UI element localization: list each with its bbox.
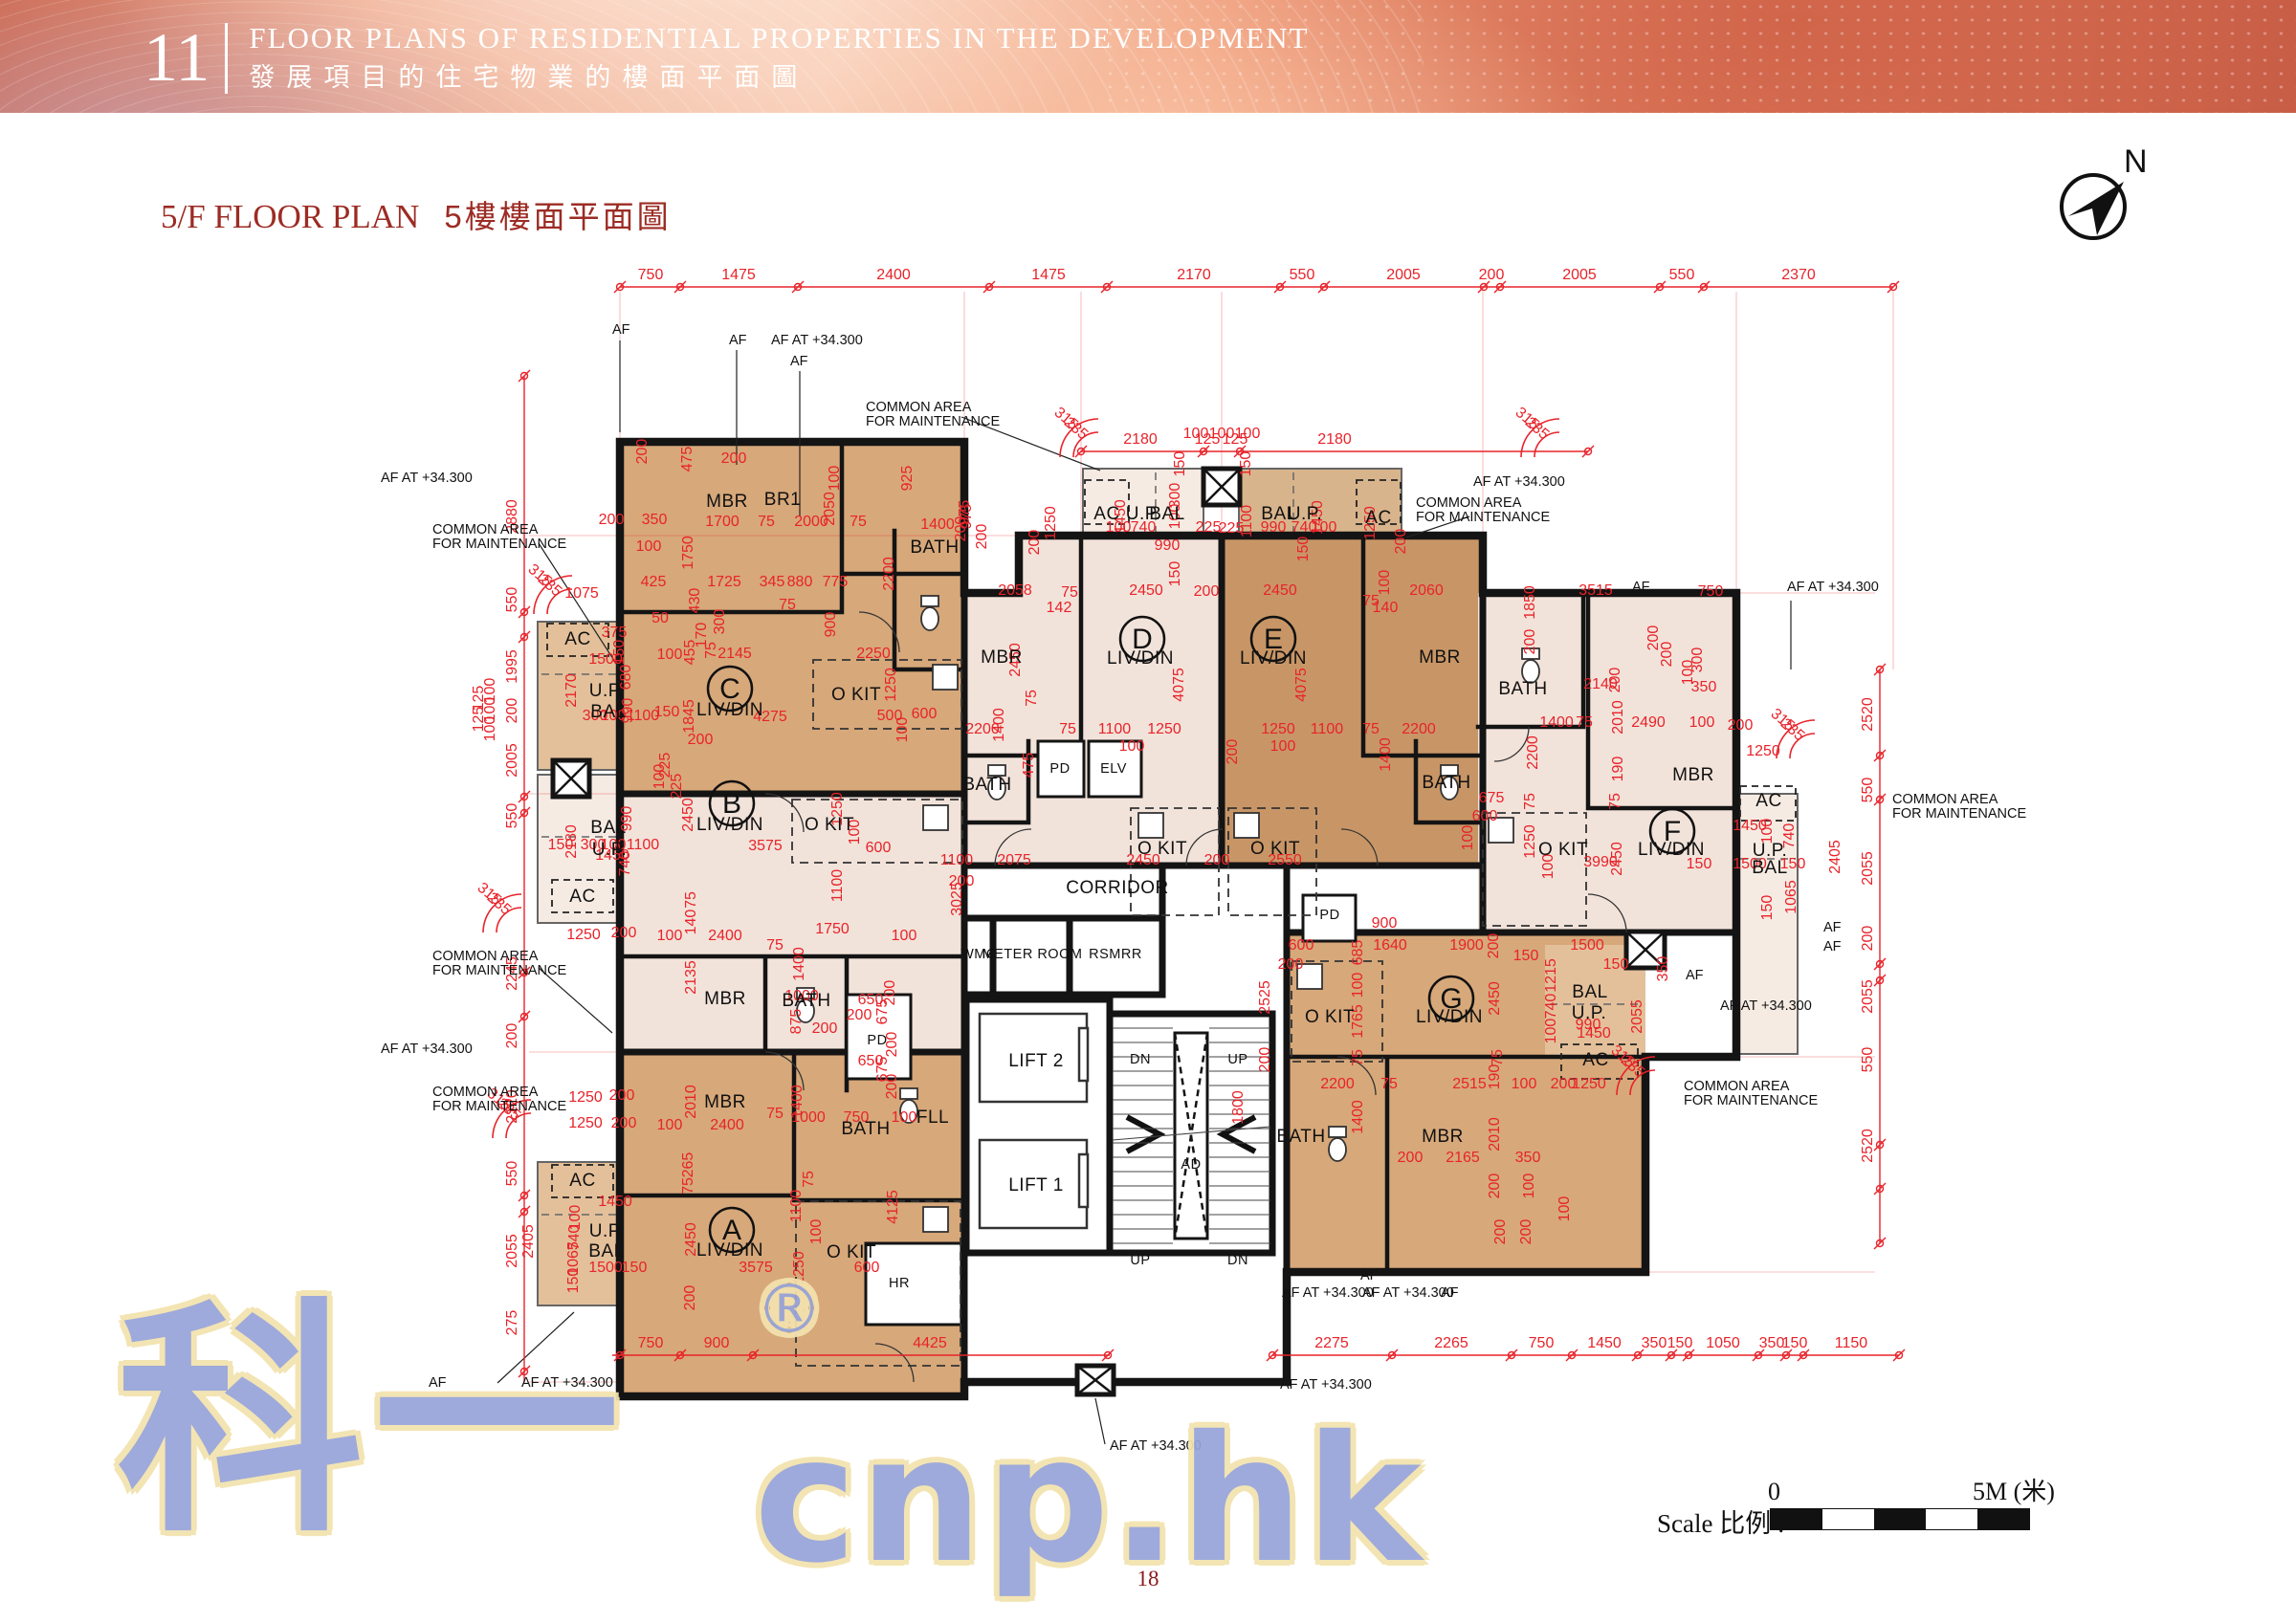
room-label: U.P.: [592, 840, 628, 860]
dimension-label: 200: [1027, 530, 1043, 556]
dimension-label: 200: [1194, 583, 1220, 600]
dimension-label: 300: [1689, 647, 1706, 673]
dimension-label: 1250: [1746, 743, 1780, 759]
dimension-label: 550: [504, 1161, 520, 1187]
dimension-label: 200: [1257, 1047, 1273, 1073]
dimension-label: 142: [1047, 600, 1072, 616]
annotation-label: AF: [612, 322, 630, 338]
dimension-label: 190: [1487, 1064, 1503, 1090]
annotation-label: AF AT +34.300: [1280, 1377, 1372, 1393]
room-label: MBR: [1419, 647, 1461, 668]
dimension-label: 150: [1759, 895, 1776, 921]
header-divider: [225, 23, 228, 94]
dimension-label: 2055: [504, 1234, 520, 1268]
room-label: DN: [1227, 1253, 1248, 1268]
dimension-label: 4125: [885, 1190, 901, 1224]
room-label: AC: [1093, 504, 1119, 524]
dimension-label: 2170: [1177, 267, 1211, 283]
dimension-label: 75: [1362, 721, 1380, 737]
room-label: AC: [1582, 1050, 1608, 1070]
dimension-label: 550: [1860, 778, 1876, 803]
dimension-label: 200: [1398, 1150, 1424, 1166]
dimension-label: 100: [894, 717, 911, 743]
dimension-label: 1100: [940, 852, 974, 868]
room-label: O KIT: [1250, 839, 1300, 859]
dimension-label: 100: [1119, 738, 1145, 755]
dimension-label: 1250: [566, 927, 601, 943]
dimension-label: 200: [1518, 1219, 1534, 1245]
dimension-label: 100: [1543, 1019, 1559, 1044]
dimension-label: 345: [760, 574, 785, 590]
dimension-label: 1250: [1043, 506, 1059, 540]
annotation-label: AF AT +34.300: [1787, 580, 1879, 595]
dimension-label: 2200: [1525, 735, 1541, 770]
dimension-label: 100: [636, 538, 662, 555]
dimension-label: 1400: [1378, 737, 1394, 772]
dimension-label: 1845: [681, 699, 697, 734]
room-label: BAL: [590, 818, 626, 838]
dimension-label: 2275: [1314, 1335, 1349, 1351]
dimension-label: 200: [1860, 926, 1876, 952]
dimension-label: 200: [599, 512, 625, 528]
dimension-label: 350: [1515, 1150, 1541, 1166]
dimension-label: 2010: [1487, 1117, 1503, 1151]
dimension-label: 685: [1350, 940, 1366, 966]
dimension-label: 425: [641, 574, 667, 590]
annotation-label: AF AT +34.300: [1473, 474, 1565, 490]
dimension-label: 2490: [1631, 714, 1666, 731]
dimension-label: 925: [899, 466, 916, 492]
annotation-label: COMMON AREAFOR MAINTENANCE: [1684, 1079, 1819, 1108]
dimension-label: 350: [1691, 679, 1717, 695]
dimension-label: 375: [602, 625, 628, 641]
dimension-label: 50: [651, 610, 669, 626]
room-label: PD: [867, 1033, 887, 1048]
annotation-label: AF AT +34.300: [381, 471, 473, 486]
dimension-label: 2265: [1434, 1335, 1468, 1351]
dimension-label: 1250: [568, 1089, 603, 1106]
dimension-label: 2180: [1317, 431, 1352, 448]
dimension-label: 100: [892, 1109, 917, 1126]
scale-bar-graphic: [1770, 1508, 2030, 1530]
dimension-label: 2450: [680, 798, 696, 832]
dimension-label: 1475: [1031, 267, 1066, 283]
dimension-label: 455: [682, 640, 698, 666]
dimension-label: 600: [866, 840, 892, 856]
dimension-label: 1800: [1230, 1090, 1247, 1125]
dimension-label: 200: [1278, 956, 1304, 973]
room-label: FLL: [916, 1108, 949, 1128]
dimension-label: 150: [654, 704, 680, 720]
dimension-label: 1995: [504, 649, 520, 684]
dimension-label: 100: [567, 1205, 584, 1231]
dimension-label: 150: [1295, 537, 1312, 562]
dimension-label: 1100: [829, 869, 846, 903]
scale-bar: Scale 比例 : 0 5M (米): [1657, 1478, 2059, 1545]
dimension-label: 1450: [1587, 1335, 1622, 1351]
dimension-label: 550: [504, 803, 520, 829]
dimension-label: 4075: [1293, 668, 1310, 702]
dimension-label: 200: [1393, 529, 1409, 555]
dimension-label: 2525: [1257, 980, 1273, 1015]
dimension-label: 200: [974, 524, 990, 550]
watermark-cjk: 科一: [117, 1293, 629, 1552]
dimension-label: 1750: [680, 536, 696, 570]
dimension-label: 1100: [1098, 721, 1132, 737]
dimension-label: 1400: [789, 1085, 806, 1119]
dimension-label: 2005: [504, 743, 520, 778]
room-label: O KIT: [827, 1242, 876, 1262]
dimension-label: 880: [787, 574, 813, 590]
dimension-label: 200: [611, 925, 637, 941]
dimension-label: 200: [1204, 852, 1230, 868]
dimension-label: 2050: [822, 492, 838, 526]
dimension-label: 100: [1521, 1173, 1537, 1199]
dimension-label: 1500: [588, 651, 623, 668]
dimension-label: 200: [1522, 629, 1538, 655]
dimension-label: 150: [1667, 1335, 1693, 1351]
annotation-label: COMMON AREAFOR MAINTENANCE: [1416, 495, 1551, 525]
room-label: AC: [569, 1171, 595, 1191]
dimension-label: 75: [680, 1177, 696, 1195]
dimension-label: 200: [609, 1087, 635, 1104]
dimension-label: 2520: [1860, 697, 1876, 732]
annotation-label: AF: [790, 354, 808, 369]
dimension-label: 2170: [563, 673, 580, 708]
dimension-label: 150: [1513, 948, 1539, 964]
dimension-label: 200: [504, 698, 520, 724]
dimension-label: 1250: [1572, 1076, 1606, 1092]
dimension-label: 140: [1373, 600, 1399, 616]
dimension-label: 2200: [881, 557, 897, 591]
dimension-label: 225: [669, 774, 685, 800]
annotation-label: AF: [1686, 968, 1704, 983]
dimension-label: 100: [651, 764, 668, 790]
dimension-label: 75: [850, 514, 867, 530]
dimension-label: 75: [779, 597, 796, 613]
dimension-label: 1100: [788, 1190, 805, 1223]
dimension-label: 200: [812, 1020, 838, 1037]
dimension-label: 1400: [791, 947, 807, 981]
room-label: AD: [1181, 1157, 1201, 1173]
dimension-label: 2055: [1860, 851, 1876, 886]
dimension-label: 1100: [627, 837, 660, 853]
dimension-label: 200: [1486, 933, 1502, 959]
dimension-label: 150: [548, 837, 574, 853]
room-label: U.P.: [589, 681, 625, 701]
dimension-label: 150: [1167, 561, 1183, 587]
room-label: O KIT: [1305, 1007, 1355, 1027]
room-label: U.P.: [1572, 1003, 1607, 1023]
dimension-label: 100: [657, 647, 683, 663]
dimension-label: 200: [882, 980, 898, 1006]
dimension-label: 100: [1377, 570, 1393, 596]
unit-letter: G: [1440, 983, 1462, 1015]
annotation-label: AF: [1441, 1285, 1459, 1301]
dimension-label: 1750: [815, 921, 850, 937]
unit-letter: F: [1664, 816, 1681, 847]
room-label: AC: [564, 629, 590, 649]
dimension-label: 1215: [1543, 958, 1559, 993]
brochure-page: 11 FLOOR PLANS OF RESIDENTIAL PROPERTIES…: [0, 0, 2296, 1623]
unit-letter: D: [1132, 624, 1153, 655]
dimension-label: 225: [1219, 520, 1245, 537]
room-label: DN: [1130, 1052, 1151, 1067]
room-label: MBR: [704, 1092, 746, 1112]
room-label: BAL: [1752, 858, 1787, 878]
room-label: HR: [889, 1276, 910, 1291]
dimension-label: 200: [1479, 267, 1505, 283]
dimension-label: 2200: [1402, 721, 1436, 737]
room-label: AC: [1755, 791, 1781, 811]
dimension-label: 350: [642, 512, 668, 528]
unit-letter: B: [722, 788, 741, 820]
dimension-label: 2165: [1446, 1150, 1480, 1166]
annotation-label: COMMON AREAFOR MAINTENANCE: [1892, 792, 2027, 822]
dimension-label: 100: [1235, 426, 1261, 442]
dimension-label: 75: [1059, 721, 1076, 737]
dimension-label: 550: [1290, 267, 1315, 283]
dimension-label: 1250: [568, 1115, 603, 1131]
dimension-label: 750: [638, 267, 664, 283]
dimension-label: 75: [758, 514, 775, 530]
dimension-label: 150: [1172, 451, 1188, 477]
room-label: BAL: [588, 1241, 624, 1261]
dimension-label: 2005: [1562, 267, 1597, 283]
annotation-label: COMMON AREAFOR MAINTENANCE: [432, 1085, 567, 1114]
room-label: U.P.: [1288, 504, 1323, 524]
section-number: 11: [143, 19, 225, 98]
dimension-label: 2135: [683, 960, 699, 995]
room-label: MBR: [1422, 1127, 1464, 1147]
dimension-label: 350: [1759, 1335, 1785, 1351]
dimension-label: 100: [892, 928, 917, 944]
dimension-label: 2400: [876, 267, 911, 283]
dimension-label: 1400: [1539, 714, 1574, 731]
dimension-label: 200: [634, 439, 651, 465]
dimension-label: 100: [482, 716, 498, 742]
dimension-label: 1250: [883, 668, 899, 702]
annotation-label: AF AT +34.300: [771, 333, 863, 348]
dimension-label: 150: [1238, 451, 1254, 477]
annotation-label: AF AT +34.300: [1720, 998, 1812, 1014]
dimension-label: 675: [1479, 790, 1505, 806]
room-label: O KIT: [805, 815, 854, 835]
scale-start: 0: [1768, 1478, 1780, 1506]
dimension-label: 2520: [1860, 1129, 1876, 1163]
room-label: UP: [1130, 1253, 1150, 1268]
annotation-label: AF AT +34.300: [1282, 1285, 1374, 1301]
dimension-label: 975: [957, 500, 973, 526]
dimension-label: 200: [847, 1007, 872, 1023]
dimension-label: 150: [1603, 956, 1629, 973]
dimension-label: 200: [721, 450, 747, 467]
dimension-label: 200: [682, 1285, 698, 1311]
dimension-label: 2250: [856, 646, 891, 662]
annotation-label: AF: [1823, 920, 1842, 935]
dimension-label: 2400: [710, 1117, 744, 1133]
dimension-label: 75: [766, 1106, 784, 1122]
room-label: O KIT: [831, 685, 881, 705]
dimension-label: 75: [801, 1171, 817, 1188]
dimension-label: 200: [1487, 1173, 1503, 1199]
dimension-label: 740: [1543, 994, 1559, 1020]
dimension-label: 200: [1728, 717, 1754, 734]
dimension-label: 150: [622, 1260, 648, 1276]
dimension-label: 140: [683, 910, 699, 935]
dimension-label: 2450: [1263, 582, 1297, 599]
dimension-label: 1725: [707, 574, 741, 590]
room-label: MBR: [704, 989, 746, 1009]
dimension-label: 2200: [1320, 1076, 1355, 1092]
annotation-label: COMMON AREAFOR MAINTENANCE: [432, 949, 567, 978]
dimension-label: 100: [1270, 738, 1296, 755]
dimension-label: 75: [1490, 1049, 1506, 1066]
dimension-label: 2010: [1610, 700, 1626, 735]
dimension-label: 75: [1380, 1076, 1398, 1092]
dimension-label: 75: [1024, 690, 1040, 707]
dimension-label: 1450: [598, 1194, 632, 1210]
dimension-label: 600: [1289, 937, 1314, 954]
header-title-en: FLOOR PLANS OF RESIDENTIAL PROPERTIES IN…: [249, 19, 1309, 57]
room-label: AC: [569, 887, 595, 907]
dimension-label: 875: [788, 1009, 805, 1035]
dimension-label: 550: [504, 587, 520, 613]
dimension-label: 1250: [1522, 824, 1538, 859]
dimension-label: 1400: [920, 516, 955, 533]
dimension-label: 900: [704, 1335, 730, 1351]
room-label: LIFT 1: [1008, 1175, 1064, 1195]
room-label: CORRIDOR: [1066, 878, 1168, 898]
room-label: BATH: [841, 1119, 890, 1139]
dimension-label: 100: [1556, 1196, 1573, 1222]
dimension-label: 200: [504, 1023, 520, 1049]
dimension-label: 1050: [1706, 1335, 1740, 1351]
watermark-url: cnp.hk: [754, 1398, 1423, 1601]
dimension-label: 2145: [717, 646, 752, 662]
dimension-label: 200: [1225, 739, 1241, 765]
room-label: METER ROOM: [982, 947, 1083, 962]
dimension-label: 1500: [1570, 937, 1604, 954]
dimension-label: 2060: [1409, 582, 1444, 599]
room-label: BATH: [1498, 679, 1547, 699]
room-label: ELV: [1100, 761, 1127, 777]
dimension-label: 1640: [1373, 937, 1407, 954]
room-label: BATH: [1276, 1127, 1325, 1147]
dimension-label: 75: [1061, 584, 1078, 601]
dimension-label: 75: [1576, 714, 1593, 731]
room-label: BAL: [1572, 982, 1607, 1002]
dimension-label: 100: [827, 466, 843, 492]
dimension-label: 4075: [1171, 668, 1187, 702]
dimension-label: 2005: [1386, 267, 1421, 283]
dimension-label: 75: [1350, 1049, 1366, 1066]
dimension-label: 1250: [1261, 721, 1295, 737]
scale-end: 5M (米): [1973, 1472, 2055, 1507]
room-label: BATH: [1422, 773, 1470, 793]
room-label: PD: [1319, 908, 1339, 923]
dimension-label: 1100: [1311, 721, 1344, 737]
annotation-label: AF AT +34.300: [381, 1042, 473, 1057]
dimension-label: 350: [1642, 1335, 1667, 1351]
room-label: O KIT: [1137, 839, 1187, 859]
dimension-label: 2450: [1487, 981, 1503, 1016]
dimension-label: 100: [1209, 426, 1235, 442]
dimension-label: 1900: [1449, 937, 1484, 954]
dimension-label: 350: [1655, 956, 1671, 982]
dimension-label: 100: [1460, 825, 1476, 851]
dimension-label: 775: [823, 574, 849, 590]
dimension-label: 2055: [1860, 979, 1876, 1014]
dimension-label: 1250: [1147, 721, 1181, 737]
dimension-label: 2515: [1452, 1076, 1487, 1092]
dimension-label: 4425: [913, 1335, 947, 1351]
dimension-label: 2400: [708, 928, 742, 944]
dimension-label: 430: [687, 588, 703, 614]
dimension-label: 475: [679, 447, 695, 472]
dimension-label: 75: [683, 891, 699, 909]
annotation-label: AF: [729, 333, 747, 348]
dimension-label: 1075: [564, 585, 599, 602]
dimension-label: 2010: [683, 1085, 699, 1119]
dimension-label: 200: [884, 1074, 900, 1100]
dimension-label: 2405: [520, 1224, 537, 1259]
scale-label: Scale 比例 :: [1657, 1502, 1784, 1540]
dimension-label: 300: [712, 609, 728, 635]
room-label: U.P.: [589, 1221, 625, 1241]
dimension-label: 2450: [1129, 582, 1163, 599]
dimension-label: 1400: [1350, 1100, 1366, 1134]
room-label: AC: [1365, 508, 1391, 528]
dimension-label: 100: [1183, 426, 1209, 442]
dimension-label: 2055: [1629, 999, 1645, 1034]
room-label: BAL: [590, 702, 626, 722]
dimension-label: 990: [1155, 537, 1181, 554]
dimension-label: 75: [1607, 793, 1623, 810]
dimension-label: 225: [1196, 519, 1222, 536]
room-label: MBR: [1672, 765, 1714, 785]
dimension-label: 200: [1607, 668, 1623, 693]
dimension-label: 265: [680, 1152, 696, 1178]
dimension-label: 475: [1021, 753, 1037, 779]
annotation-label: AF: [1632, 580, 1650, 595]
dimension-label: 200: [688, 732, 714, 748]
dimension-label: 100: [1689, 714, 1715, 731]
dimension-label: 1400: [991, 708, 1007, 742]
dimension-label: 2370: [1781, 267, 1816, 283]
dimension-label: 190: [1610, 757, 1626, 782]
dimension-label: 1500: [588, 1260, 623, 1276]
dimension-label: 750: [638, 1335, 664, 1351]
room-label: LIFT 2: [1008, 1051, 1064, 1071]
room-label: BAL: [1149, 504, 1184, 524]
dimension-label: 2405: [1827, 840, 1843, 874]
room-label: UP: [1227, 1052, 1247, 1067]
dimension-label: 75: [1522, 793, 1538, 810]
dimension-label: 900: [1372, 915, 1398, 932]
room-label: PD: [1049, 761, 1070, 777]
dimension-label: 75: [766, 937, 784, 954]
dimension-label: 600: [912, 706, 938, 722]
annotation-label: COMMON AREAFOR MAINTENANCE: [866, 400, 1001, 429]
unit-letter: C: [719, 673, 740, 705]
dimension-label: 100: [1350, 973, 1366, 998]
dimension-label: 1150: [1835, 1335, 1868, 1351]
room-label: MBR: [706, 492, 748, 512]
room-label: BATH: [962, 775, 1011, 795]
dimension-label: 1065: [1783, 880, 1799, 914]
dimension-label: 2180: [1123, 431, 1158, 448]
